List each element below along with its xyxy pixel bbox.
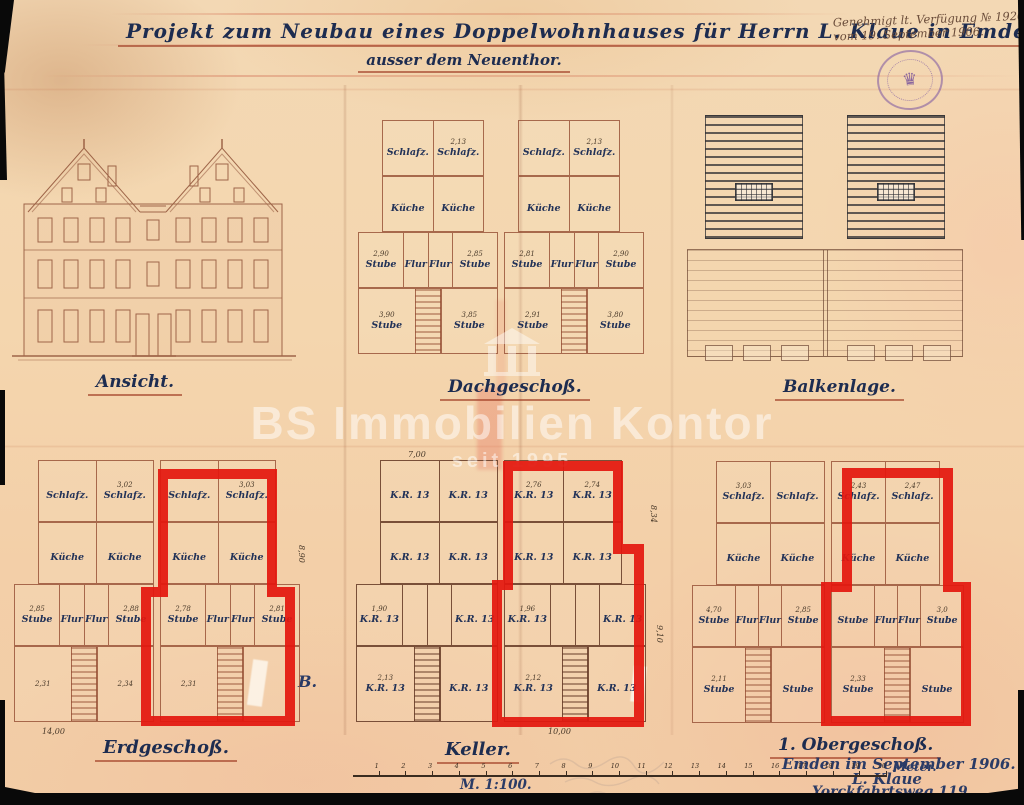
plan-row: 1,90K.R. 13K.R. 131,96K.R. 13K.R. 13 [356,584,646,646]
room-label: Küche [230,552,264,563]
dwelling-half: 1,90K.R. 13K.R. 13 [356,584,498,646]
scan-edge [1018,690,1024,805]
plan-row: 4,70StubeFlurFlur2,85StubeStubeFlurFlur3… [692,585,964,647]
room-label: Küche [172,552,206,563]
room-cell: Küche [383,177,433,231]
room-label: K.R. 13 [360,614,399,625]
dimension-text: 2,78 [175,605,191,614]
room-label: Flur [759,615,781,626]
room-cell: 1,90K.R. 13 [357,585,402,645]
room-cell: 3,03Schlafz. [218,461,276,521]
room-label: K.R. 13 [449,490,488,501]
room-cell: 2,12K.R. 13 [505,647,562,721]
room-cell: Küche [161,523,218,583]
dimension-text: 2,13 [586,138,602,147]
room-cell: 3,0Stube [920,586,963,646]
scanned-building-plan-document: Projekt zum Neubau eines Doppelwohnhause… [0,0,1024,805]
beam-box [923,345,951,361]
room-label: Stube [783,684,814,695]
room-cell: 2,85Stube [781,586,824,646]
room-cell: Flur [84,585,108,645]
room-cell: 2,47Schlafz. [885,462,939,522]
room-label: Stube [837,615,868,626]
room-cell [243,647,300,721]
staircase [415,289,441,353]
watermark-house-icon [482,328,542,376]
dwelling-half: StubeFlurFlur3,0Stube [831,585,964,647]
room-cell: 2,43Schlafz. [832,462,885,522]
dimension-text: 2,88 [123,605,139,614]
ruler-tick-number: 3 [406,762,433,775]
dimension-text: 2,33 [850,675,866,684]
annotation-b: B. [298,672,317,691]
room-cell: Flur [549,233,573,287]
room-label: Stube [22,614,53,625]
room-cell: 2,31 [15,647,71,721]
staircase [71,647,97,721]
dwelling-half: 2,13K.R. 13K.R. 13 [356,646,498,722]
dwelling-half: 1,96K.R. 13K.R. 13 [504,584,646,646]
room-cell: Flur [205,585,229,645]
room-label: K.R. 13 [514,683,553,694]
room-label: Stube [454,320,485,331]
dimension-text: 2,81 [269,605,285,614]
dwelling-half: 3,03Schlafz.Schlafz. [716,461,825,523]
room-cell [402,585,427,645]
plan-row: 2,312,342,31 [14,646,300,722]
paper-crease [40,75,1020,77]
room-cell: Küche [96,523,154,583]
room-label: Schlafz. [46,490,88,501]
fold-line [0,88,1024,91]
room-label: Stube [698,615,729,626]
room-label: Schlafz. [837,491,879,502]
dwelling-half: 2,11StubeStube [692,647,825,723]
room-cell: Flur [428,233,452,287]
room-label: K.R. 13 [597,683,636,694]
room-cell: 2,33Stube [832,648,884,722]
room-label: Küche [781,553,815,564]
caption-keller: Keller. [437,739,519,764]
dwelling-half: 2,43Schlafz.2,47Schlafz. [831,461,940,523]
room-cell: K.R. 13 [439,461,498,521]
ruler-tick-number: 12 [647,762,674,775]
room-cell: Schlafz. [383,121,433,175]
room-label: K.R. 13 [366,683,405,694]
dwelling-half: Schlafz.2,13Schlafz. [518,120,620,176]
beam-grid-right [877,183,915,201]
beam-box [743,345,771,361]
room-label: Küche [727,553,761,564]
dimension-text: 2,85 [795,606,811,615]
room-cell [575,585,600,645]
dimension-text: 2,43 [851,482,867,491]
room-label: Küche [441,203,475,214]
room-cell: K.R. 13 [599,585,645,645]
ruler-tick-number: 2 [380,762,407,775]
plan-row: K.R. 13K.R. 13K.R. 13K.R. 13 [380,522,622,584]
ruler-tick-number: 19 [834,762,861,775]
ruler-tick-number: 5 [460,762,487,775]
document-subtitle: ausser dem Neuenthor. [358,51,570,73]
ruler-tick-number: 13 [673,762,700,775]
staircase [561,289,587,353]
fold-line [0,445,1024,448]
room-cell: 2,81Stube [254,585,299,645]
scale-ruler: 1234567891011121314151617181920 [353,762,887,777]
dimension-text: 2,90 [613,250,629,259]
room-label: Stube [116,614,147,625]
room-cell: Stube [832,586,874,646]
room-cell: K.R. 13 [505,523,563,583]
room-label: Küche [577,203,611,214]
room-label: Flur [736,615,758,626]
dwelling-half: 2,76K.R. 132,74K.R. 13 [504,460,622,522]
plan-row: Schlafz.2,13Schlafz.Schlafz.2,13Schlafz. [382,120,620,176]
dwelling-half: KücheKüche [160,522,276,584]
dimension-text: 2,85 [467,250,483,259]
room-label: Flur [898,615,920,626]
plan-row: 2,13K.R. 13K.R. 132,12K.R. 13K.R. 13 [356,646,646,722]
ruler-tick-number: 14 [700,762,727,775]
ruler-tick-number: 15 [727,762,754,775]
dimension-text: 2,76 [526,481,542,490]
room-cell: K.R. 13 [381,523,439,583]
room-label: Stube [168,614,199,625]
scan-edge [0,793,1024,805]
room-label: Stube [843,684,874,695]
plan-row: 3,03Schlafz.Schlafz.2,43Schlafz.2,47Schl… [716,461,940,523]
room-cell: 4,70Stube [693,586,735,646]
dwelling-half: K.R. 13K.R. 13 [380,522,498,584]
room-label: Flur [61,614,83,625]
room-cell: Flur [574,233,598,287]
room-cell: Küche [832,524,885,584]
room-cell: 2,88Stube [108,585,153,645]
dimension-keller-right-lower: 9,10 [655,625,664,643]
stamp-inner-ring: ♛ [885,56,936,103]
room-label: K.R. 13 [514,490,553,501]
room-cell: K.R. 13 [440,647,498,721]
dimension-text: 3,02 [117,481,133,490]
dimension-text: 2,85 [29,605,45,614]
room-cell: Flur [59,585,83,645]
room-cell: K.R. 13 [381,461,439,521]
room-cell: 2,85Stube [15,585,59,645]
room-cell: 2,13K.R. 13 [357,647,414,721]
dimension-keller-top: 7,00 [408,450,426,459]
ruler-tick-number: 9 [567,762,594,775]
room-label: K.R. 13 [573,552,612,563]
room-cell: 2,78Stube [161,585,205,645]
room-cell: 2,74K.R. 13 [563,461,622,521]
room-label: Flur [207,614,229,625]
ruler-tick-number: 17 [780,762,807,775]
room-cell: Flur [735,586,758,646]
room-cell: Flur [758,586,781,646]
room-label: Schlafz. [437,147,479,158]
dwelling-half: 2,85StubeFlurFlur2,88Stube [14,584,154,646]
floorplan-dachgeschoss: Schlafz.2,13Schlafz.Schlafz.2,13Schlafz.… [358,120,644,354]
room-label: Flur [429,259,451,270]
room-label: Stube [262,614,293,625]
room-label: Stube [606,259,637,270]
room-label: K.R. 13 [390,552,429,563]
dimension-text: 3,85 [461,311,477,320]
beam-field-left [705,115,803,239]
room-label: Stube [927,615,958,626]
ruler-tick-number: 10 [593,762,620,775]
room-cell: K.R. 13 [451,585,497,645]
dwelling-half: K.R. 13K.R. 13 [504,522,622,584]
ruler-tick-number: 6 [487,762,514,775]
room-label: Schlafz. [104,490,146,501]
dimension-text: 2,34 [117,680,133,689]
dwelling-half: 2,31 [160,646,300,722]
dimension-keller-right-upper: 8,34 [649,505,658,523]
title-block: Projekt zum Neubau eines Doppelwohnhause… [118,19,810,73]
floorplan-obergeschoss: 3,03Schlafz.Schlafz.2,43Schlafz.2,47Schl… [692,461,964,723]
dwelling-half: 2,12K.R. 13K.R. 13 [504,646,646,722]
ruler-tick-number: 20 [860,762,887,775]
elevation-drawing [8,132,300,368]
dwelling-half: K.R. 13K.R. 13 [380,460,498,522]
beam-field-lower [687,249,963,357]
room-cell: 2,81Stube [505,233,549,287]
dimension-text: 2,12 [525,674,541,683]
ruler-tick-number: 4 [433,762,460,775]
room-label: Schlafz. [523,147,565,158]
room-label: Küche [391,203,425,214]
crown-crest-icon: ♛ [901,69,919,91]
beam-box [885,345,913,361]
dimension-text: 3,90 [379,311,395,320]
room-cell: Küche [569,177,620,231]
room-cell: K.R. 13 [588,647,646,721]
room-label: Stube [922,684,953,695]
room-cell: 2,90Stube [359,233,403,287]
dwelling-half: 2,90StubeFlurFlur2,85Stube [358,232,498,288]
room-cell: Küche [519,177,569,231]
dimension-text: 2,31 [181,680,197,689]
dimension-text: 2,47 [905,482,921,491]
room-label: Flur [575,259,597,270]
room-label: K.R. 13 [390,490,429,501]
room-label: K.R. 13 [508,614,547,625]
staircase [884,648,910,722]
room-label: K.R. 13 [455,614,494,625]
room-label: Küche [896,553,930,564]
dimension-text: 2,13 [450,138,466,147]
ruler-tick-number: 7 [513,762,540,775]
dimension-text: 3,80 [607,311,623,320]
dwelling-half: 2,312,34 [14,646,154,722]
room-label: Flur [405,259,427,270]
room-label: Küche [527,203,561,214]
room-cell: 3,80Stube [587,289,644,353]
room-label: K.R. 13 [449,683,488,694]
floorplan-keller: K.R. 13K.R. 132,76K.R. 132,74K.R. 13K.R.… [356,460,646,722]
room-cell: Küche [433,177,484,231]
room-cell: Küche [885,524,939,584]
beam-layout-drawing [687,113,963,363]
room-cell [550,585,575,645]
ruler-tick-number: 11 [620,762,647,775]
room-cell: Flur [230,585,254,645]
watermark-brand: BS Immobilien Kontor [0,396,1024,450]
dwelling-half: 2,81StubeFlurFlur2,90Stube [504,232,644,288]
room-cell: K.R. 13 [439,523,498,583]
room-label: Stube [366,259,397,270]
dimension-text: 2,74 [584,481,600,490]
room-cell: Schlafz. [770,462,824,522]
staircase [414,647,440,721]
beam-box [781,345,809,361]
fold-line [670,85,674,735]
dimension-text: 3,03 [736,482,752,491]
caption-ansicht: Ansicht. [88,372,182,396]
scan-edge [0,70,7,180]
room-label: Stube [788,615,819,626]
fold-line [343,85,347,735]
room-cell: Schlafz. [519,121,569,175]
scan-edge [0,390,5,485]
room-label: Schlafz. [891,491,933,502]
room-label: Schlafz. [168,490,210,501]
dwelling-half: 2,33StubeStube [831,647,964,723]
room-cell: 2,76K.R. 13 [505,461,563,521]
staircase [562,647,588,721]
caption-dachgeschoss: Dachgeschoß. [440,377,590,401]
room-label: Flur [231,614,253,625]
beam-field-right [847,115,945,239]
room-label: Küche [842,553,876,564]
room-cell: 2,34 [97,647,154,721]
dimension-text: 4,70 [706,606,722,615]
room-label: Schlafz. [387,147,429,158]
ruler-tick-number: 16 [754,762,781,775]
room-label: K.R. 13 [514,552,553,563]
dimension-text: 1,90 [372,605,388,614]
plan-row: KücheKücheKücheKüche [716,523,940,585]
dwelling-half: KücheKüche [716,523,825,585]
party-wall-line [823,250,828,356]
room-label: K.R. 13 [573,490,612,501]
dimension-text: 1,96 [520,605,536,614]
staircase [217,647,243,721]
dwelling-half: 2,78StubeFlurFlur2,81Stube [160,584,300,646]
room-label: Stube [460,259,491,270]
room-cell: 2,31 [161,647,217,721]
dwelling-half: Schlafz.2,13Schlafz. [382,120,484,176]
floorplan-erdgeschoss: Schlafz.3,02Schlafz.Schlafz.3,03Schlafz.… [14,460,300,722]
room-label: K.R. 13 [603,614,642,625]
room-cell: Stube [910,648,963,722]
room-cell: 3,90Stube [359,289,415,353]
room-label: Schlafz. [776,491,818,502]
room-label: Stube [704,684,735,695]
scan-edge [0,0,14,80]
dwelling-half: KücheKüche [831,523,940,585]
room-label: Küche [108,552,142,563]
caption-balkenlage: Balkenlage. [775,377,904,401]
room-cell: 2,11Stube [693,648,745,722]
dwelling-half: Schlafz.3,02Schlafz. [38,460,154,522]
plan-row: 2,85StubeFlurFlur2,88Stube2,78StubeFlurF… [14,584,300,646]
plan-row: KücheKücheKücheKüche [38,522,276,584]
room-cell: 2,13Schlafz. [433,121,484,175]
dimension-text: 2,91 [525,311,541,320]
room-cell: K.R. 13 [563,523,622,583]
plan-row: Schlafz.3,02Schlafz.Schlafz.3,03Schlafz. [38,460,276,522]
dimension-text: 2,81 [519,250,535,259]
dimension-text: 2,31 [35,680,51,689]
caption-erdgeschoss: Erdgeschoß. [95,737,237,762]
dimension-keller-bottom: 10,00 [548,727,571,736]
room-cell: 1,96K.R. 13 [505,585,550,645]
room-cell: Stube [771,648,824,722]
room-cell: 3,03Schlafz. [717,462,770,522]
ruler-tick-number: 18 [807,762,834,775]
room-label: Flur [551,259,573,270]
official-stamp: ♛ [874,46,947,114]
dwelling-half: 3,90Stube3,85Stube [358,288,498,354]
room-cell: Flur [403,233,427,287]
room-cell: Schlafz. [161,461,218,521]
plan-row: 2,11StubeStube2,33StubeStube [692,647,964,723]
room-label: Schlafz. [722,491,764,502]
room-label: Schlafz. [573,147,615,158]
room-cell: 2,90Stube [598,233,643,287]
dimension-text: 2,11 [711,675,727,684]
ruler-tick-number: 1 [353,762,380,775]
room-cell: Schlafz. [39,461,96,521]
ruler-tick-number: 8 [540,762,567,775]
room-label: Küche [50,552,84,563]
room-cell [427,585,452,645]
room-cell: Flur [897,586,920,646]
dwelling-half: KücheKüche [518,176,620,232]
room-cell: 3,02Schlafz. [96,461,154,521]
beam-box [705,345,733,361]
room-label: Flur [85,614,107,625]
room-label: K.R. 13 [449,552,488,563]
dimension-text: 3,03 [239,481,255,490]
dwelling-half: 4,70StubeFlurFlur2,85Stube [692,585,825,647]
dwelling-half: KücheKüche [38,522,154,584]
room-cell: Küche [717,524,770,584]
room-label: Stube [371,320,402,331]
staircase [745,648,771,722]
room-label: Stube [600,320,631,331]
room-cell: 2,85Stube [452,233,497,287]
dimension-text: 3,0 [937,606,948,615]
dimension-eg-bottom: 14,00 [42,727,65,736]
plan-row: 2,90StubeFlurFlur2,85Stube2,81StubeFlurF… [358,232,644,288]
room-cell: Küche [770,524,824,584]
dwelling-half: KücheKüche [382,176,484,232]
dwelling-half: Schlafz.3,03Schlafz. [160,460,276,522]
beam-box [847,345,875,361]
plan-row: KücheKücheKücheKüche [382,176,620,232]
room-cell: Küche [39,523,96,583]
dimension-text: 2,90 [373,250,389,259]
room-label: Schlafz. [226,490,268,501]
beam-grid-left [735,183,773,201]
room-label: Stube [512,259,543,270]
room-cell: Küche [218,523,276,583]
room-label: Flur [875,615,897,626]
